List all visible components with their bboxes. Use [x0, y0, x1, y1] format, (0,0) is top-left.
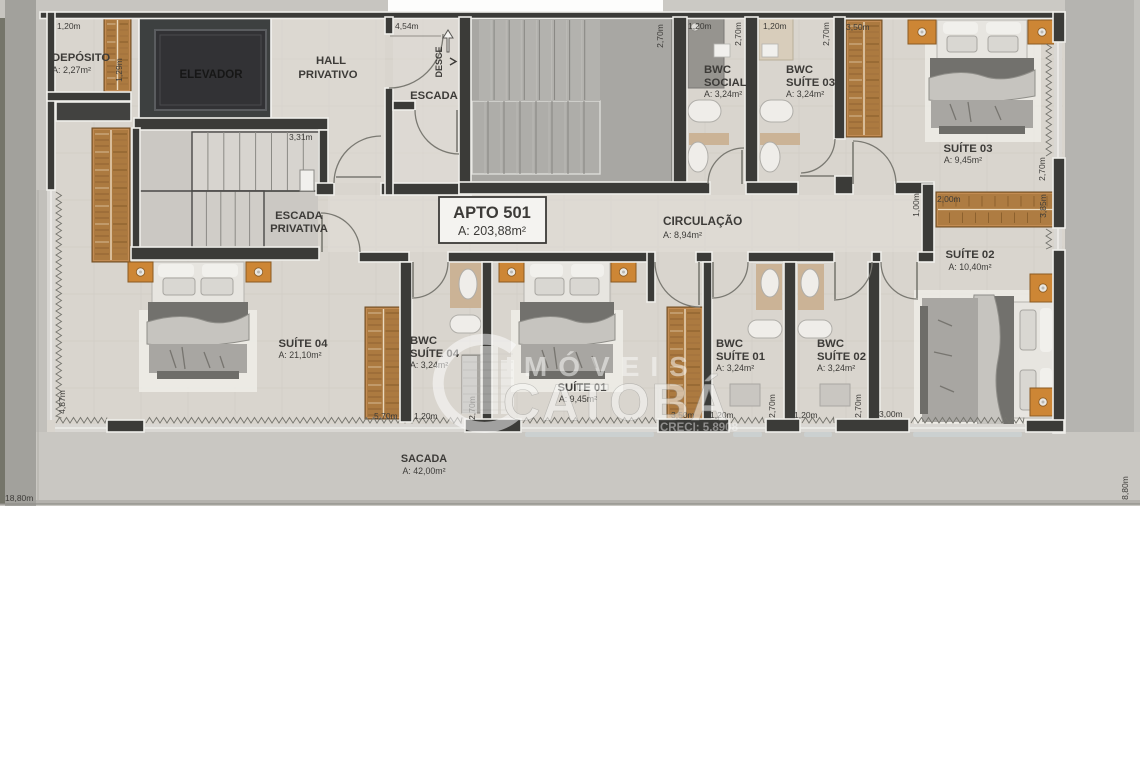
svg-text:PRIVATIVA: PRIVATIVA: [270, 223, 328, 235]
svg-text:A: 8,94m²: A: 8,94m²: [663, 230, 702, 240]
svg-text:1,20m: 1,20m: [763, 21, 787, 31]
svg-text:3,00m: 3,00m: [879, 409, 903, 419]
svg-text:ELEVADOR: ELEVADOR: [179, 69, 243, 81]
svg-text:CRECI: 5.8908: CRECI: 5.8908: [660, 422, 739, 434]
svg-text:SUÍTE 02: SUÍTE 02: [817, 350, 866, 363]
svg-text:ESCADA: ESCADA: [410, 90, 458, 102]
svg-text:BWC: BWC: [786, 64, 813, 76]
svg-text:3,85m: 3,85m: [1038, 194, 1048, 218]
svg-text:SUÍTE 01: SUÍTE 01: [716, 350, 765, 363]
svg-text:A: 21,10m²: A: 21,10m²: [278, 350, 321, 360]
svg-text:A: 10,40m²: A: 10,40m²: [948, 262, 991, 272]
svg-text:SUÍTE 04: SUÍTE 04: [279, 337, 329, 350]
svg-text:BWC: BWC: [716, 338, 743, 350]
svg-text:8,80m: 8,80m: [1120, 476, 1130, 500]
svg-text:SOCIAL: SOCIAL: [704, 77, 747, 89]
svg-text:1,00m: 1,00m: [911, 193, 921, 217]
svg-text:BWC: BWC: [704, 64, 731, 76]
svg-text:18,80m: 18,80m: [5, 493, 33, 503]
svg-text:2,70m: 2,70m: [821, 22, 831, 46]
svg-text:2,70m: 2,70m: [1037, 157, 1047, 181]
svg-text:CIRCULAÇÃO: CIRCULAÇÃO: [663, 214, 742, 228]
svg-text:1,20m: 1,20m: [414, 411, 438, 421]
svg-text:A: 3,24m²: A: 3,24m²: [786, 89, 824, 99]
svg-text:ESCADA: ESCADA: [275, 210, 323, 222]
svg-text:2,70m: 2,70m: [733, 22, 743, 46]
svg-text:A: 3,24m²: A: 3,24m²: [704, 89, 742, 99]
svg-text:2,00m: 2,00m: [937, 194, 961, 204]
svg-text:4,87m: 4,87m: [57, 390, 67, 414]
svg-text:BWC: BWC: [817, 338, 844, 350]
svg-text:BWC: BWC: [410, 335, 437, 347]
svg-text:A: 9,45m²: A: 9,45m²: [944, 155, 982, 165]
svg-text:A: 3,24m²: A: 3,24m²: [716, 363, 754, 373]
svg-text:DESCE: DESCE: [434, 46, 444, 77]
svg-text:APTO 501: APTO 501: [453, 204, 531, 222]
svg-text:DEPÓSITO: DEPÓSITO: [52, 51, 110, 64]
svg-text:A: 42,00m²: A: 42,00m²: [402, 466, 445, 476]
svg-text:HALL: HALL: [316, 55, 346, 67]
svg-text:SUÍTE 02: SUÍTE 02: [946, 248, 995, 261]
svg-text:5,70m: 5,70m: [374, 411, 398, 421]
svg-text:2,70m: 2,70m: [655, 24, 665, 48]
svg-text:A: 2,27m²: A: 2,27m²: [52, 65, 91, 75]
svg-text:A: 203,88m²: A: 203,88m²: [458, 224, 526, 238]
svg-text:SUÍTE 03: SUÍTE 03: [944, 142, 993, 155]
svg-text:PRIVATIVO: PRIVATIVO: [298, 69, 357, 81]
svg-text:SACADA: SACADA: [401, 453, 447, 465]
svg-text:A: 3,24m²: A: 3,24m²: [817, 363, 855, 373]
svg-text:1,20m: 1,20m: [794, 410, 818, 420]
svg-text:1,29m: 1,29m: [114, 58, 124, 82]
svg-text:2,70m: 2,70m: [853, 394, 863, 418]
svg-text:4,54m: 4,54m: [395, 21, 419, 31]
svg-text:3,50m: 3,50m: [846, 22, 870, 32]
svg-text:SUÍTE 03: SUÍTE 03: [786, 76, 835, 89]
svg-text:2,70m: 2,70m: [767, 394, 777, 418]
svg-text:1,20m: 1,20m: [57, 21, 81, 31]
svg-text:1,20m: 1,20m: [688, 21, 712, 31]
svg-text:3,31m: 3,31m: [289, 132, 313, 142]
